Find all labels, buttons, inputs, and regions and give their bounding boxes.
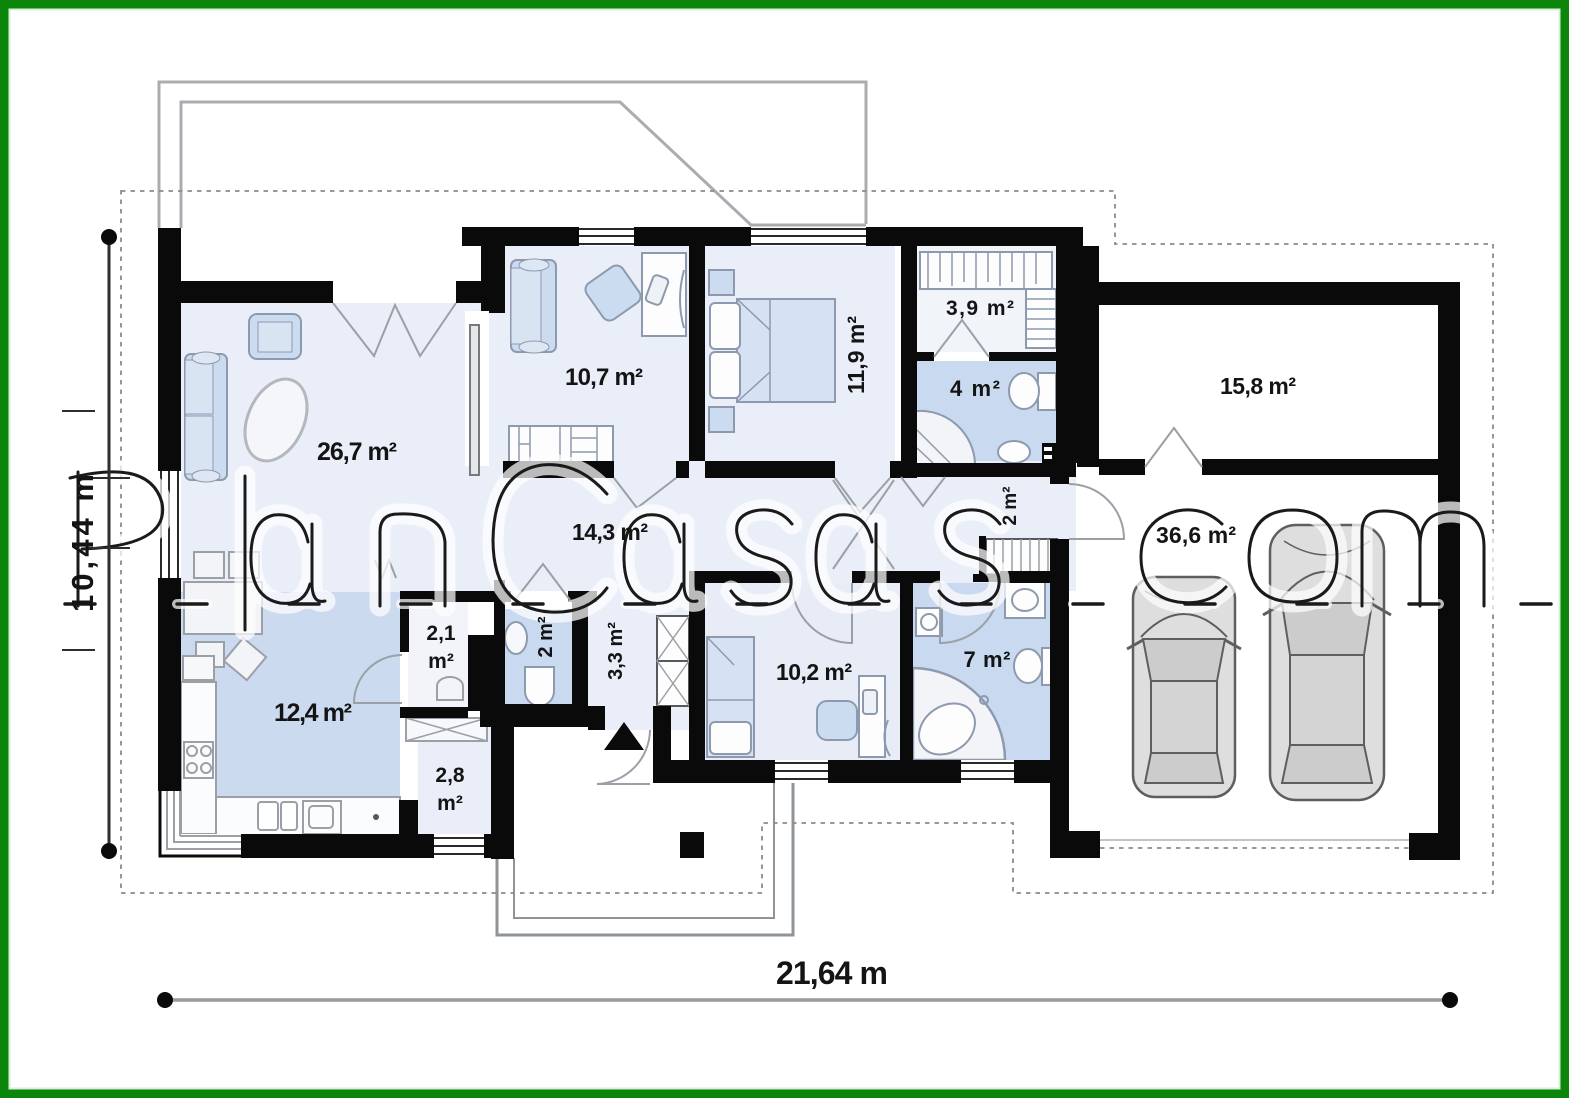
- svg-text:21,64 m: 21,64 m: [776, 955, 888, 991]
- svg-text:2,8: 2,8: [435, 764, 465, 787]
- svg-text:2 m²: 2 m²: [535, 616, 557, 657]
- svg-text:10,44 m: 10,44 m: [65, 474, 100, 612]
- svg-text:15,8 m²: 15,8 m²: [1220, 373, 1296, 399]
- svg-text:4 m²: 4 m²: [950, 376, 1000, 401]
- svg-text:10,2 m²: 10,2 m²: [776, 659, 852, 685]
- svg-text:14,3 m²: 14,3 m²: [572, 519, 648, 545]
- svg-text:26,7 m²: 26,7 m²: [317, 438, 397, 466]
- svg-text:m²: m²: [428, 650, 454, 673]
- svg-text:2,1: 2,1: [426, 622, 456, 645]
- svg-text:3,9 m²: 3,9 m²: [946, 297, 1014, 320]
- svg-text:2 m²: 2 m²: [1000, 486, 1021, 525]
- svg-text:3,3 m²: 3,3 m²: [605, 622, 627, 680]
- svg-text:36,6 m²: 36,6 m²: [1156, 522, 1236, 548]
- svg-text:10,7 m²: 10,7 m²: [565, 364, 643, 391]
- svg-text:m²: m²: [437, 792, 463, 815]
- svg-text:7 m²: 7 m²: [964, 647, 1011, 672]
- svg-text:11,9 m²: 11,9 m²: [843, 316, 869, 394]
- svg-text:12,4 m²: 12,4 m²: [274, 699, 352, 727]
